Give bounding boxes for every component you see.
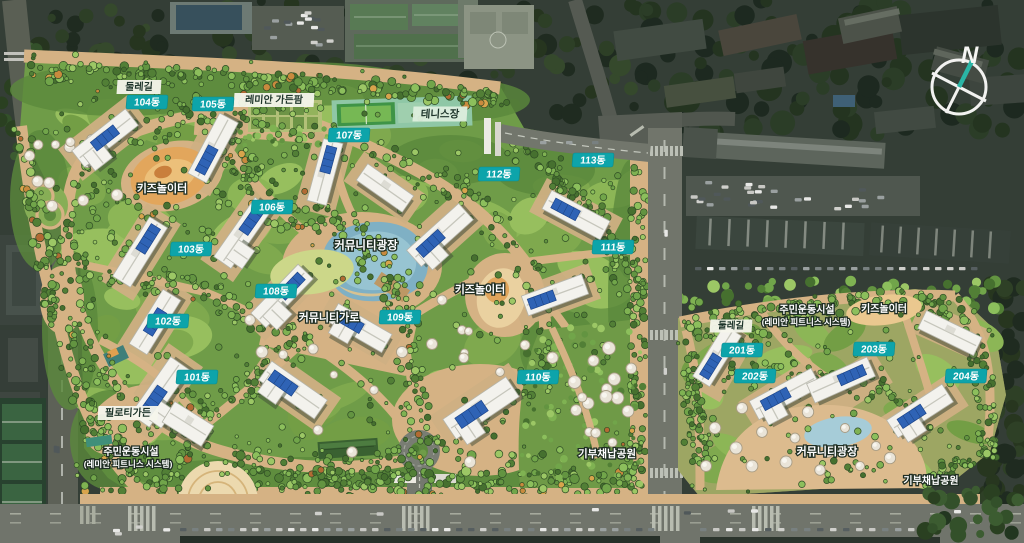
svg-text:테니스장: 테니스장 bbox=[420, 108, 460, 121]
svg-text:커뮤니티광장: 커뮤니티광장 bbox=[797, 444, 858, 458]
svg-text:키즈놀이터: 키즈놀이터 bbox=[861, 302, 907, 315]
svg-text:109동: 109동 bbox=[387, 311, 414, 323]
svg-text:둘레길: 둘레길 bbox=[125, 80, 153, 93]
svg-text:키즈놀이터: 키즈놀이터 bbox=[137, 181, 188, 195]
svg-text:N: N bbox=[961, 42, 979, 69]
svg-text:111동: 111동 bbox=[600, 241, 626, 253]
svg-text:108동: 108동 bbox=[263, 285, 290, 297]
svg-text:202동: 202동 bbox=[742, 370, 769, 382]
svg-text:106동: 106동 bbox=[259, 201, 286, 213]
svg-text:203동: 203동 bbox=[861, 343, 888, 355]
svg-text:107동: 107동 bbox=[336, 129, 363, 141]
svg-text:(레미안 피트니스 시스템): (레미안 피트니스 시스템) bbox=[762, 317, 851, 327]
svg-text:레미안 가든팜: 레미안 가든팜 bbox=[245, 93, 305, 106]
svg-text:기부채납공원: 기부채납공원 bbox=[903, 474, 958, 487]
svg-text:112동: 112동 bbox=[486, 168, 512, 180]
svg-text:기부채납공원: 기부채납공원 bbox=[578, 447, 636, 460]
svg-text:주민운동시설: 주민운동시설 bbox=[779, 303, 834, 316]
svg-text:102동: 102동 bbox=[155, 315, 182, 327]
svg-text:104동: 104동 bbox=[134, 96, 161, 108]
svg-text:101동: 101동 bbox=[184, 371, 211, 383]
svg-text:204동: 204동 bbox=[953, 370, 980, 382]
svg-text:201동: 201동 bbox=[729, 344, 756, 356]
svg-text:커뮤니티가로: 커뮤니티가로 bbox=[299, 310, 360, 324]
svg-text:주민운동시설: 주민운동시설 bbox=[103, 445, 158, 458]
svg-text:105동: 105동 bbox=[200, 98, 227, 110]
svg-text:103동: 103동 bbox=[178, 243, 205, 255]
svg-text:필로티가든: 필로티가든 bbox=[105, 406, 152, 419]
svg-text:둘레길: 둘레길 bbox=[718, 320, 745, 332]
svg-text:113동: 113동 bbox=[580, 154, 606, 166]
svg-text:커뮤니티광장: 커뮤니티광장 bbox=[334, 238, 398, 252]
svg-text:(레미안 피트니스 시스템): (레미안 피트니스 시스템) bbox=[84, 459, 173, 469]
svg-text:110동: 110동 bbox=[525, 371, 551, 383]
svg-text:키즈놀이터: 키즈놀이터 bbox=[455, 282, 506, 296]
